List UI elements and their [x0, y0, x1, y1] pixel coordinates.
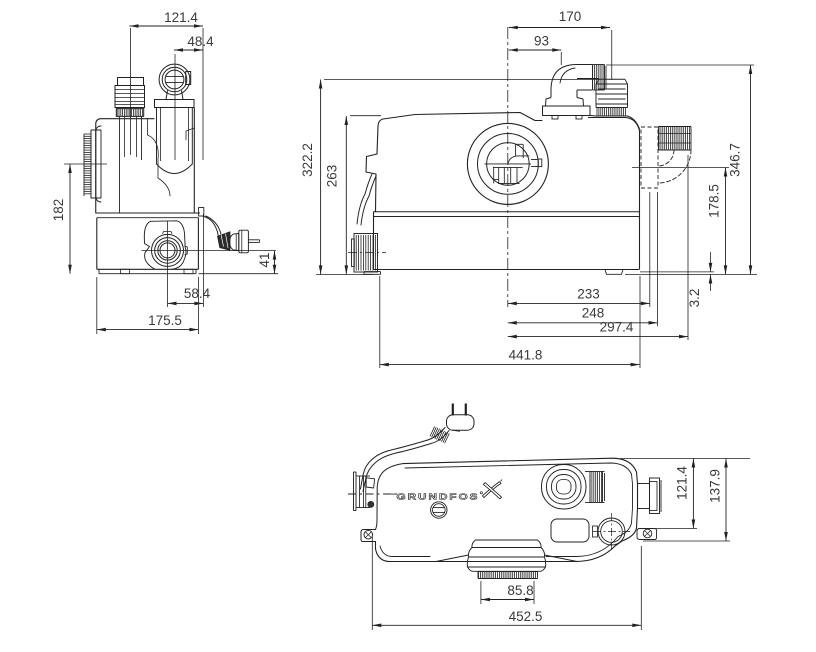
svg-text:58.4: 58.4 — [184, 286, 211, 301]
svg-text:248: 248 — [582, 306, 605, 321]
svg-text:346.7: 346.7 — [728, 143, 743, 177]
svg-text:93: 93 — [534, 34, 549, 49]
svg-text:121.4: 121.4 — [164, 10, 198, 25]
svg-text:178.5: 178.5 — [707, 184, 722, 218]
svg-text:322.2: 322.2 — [300, 143, 315, 177]
svg-text:121.4: 121.4 — [675, 466, 690, 500]
svg-text:441.8: 441.8 — [509, 348, 543, 363]
svg-text:175.5: 175.5 — [148, 313, 182, 328]
svg-text:48.4: 48.4 — [187, 34, 214, 49]
svg-text:297.4: 297.4 — [600, 320, 634, 335]
svg-text:182: 182 — [51, 199, 66, 222]
svg-text:GRUNDFOS: GRUNDFOS — [397, 492, 480, 502]
svg-text:85.8: 85.8 — [507, 583, 533, 598]
svg-text:41: 41 — [257, 252, 272, 267]
svg-text:452.5: 452.5 — [509, 609, 543, 624]
svg-text:263: 263 — [325, 165, 340, 188]
svg-text:137.9: 137.9 — [708, 469, 723, 503]
svg-text:233: 233 — [577, 287, 600, 302]
svg-text:3.2: 3.2 — [687, 289, 702, 308]
svg-text:170: 170 — [559, 9, 582, 24]
